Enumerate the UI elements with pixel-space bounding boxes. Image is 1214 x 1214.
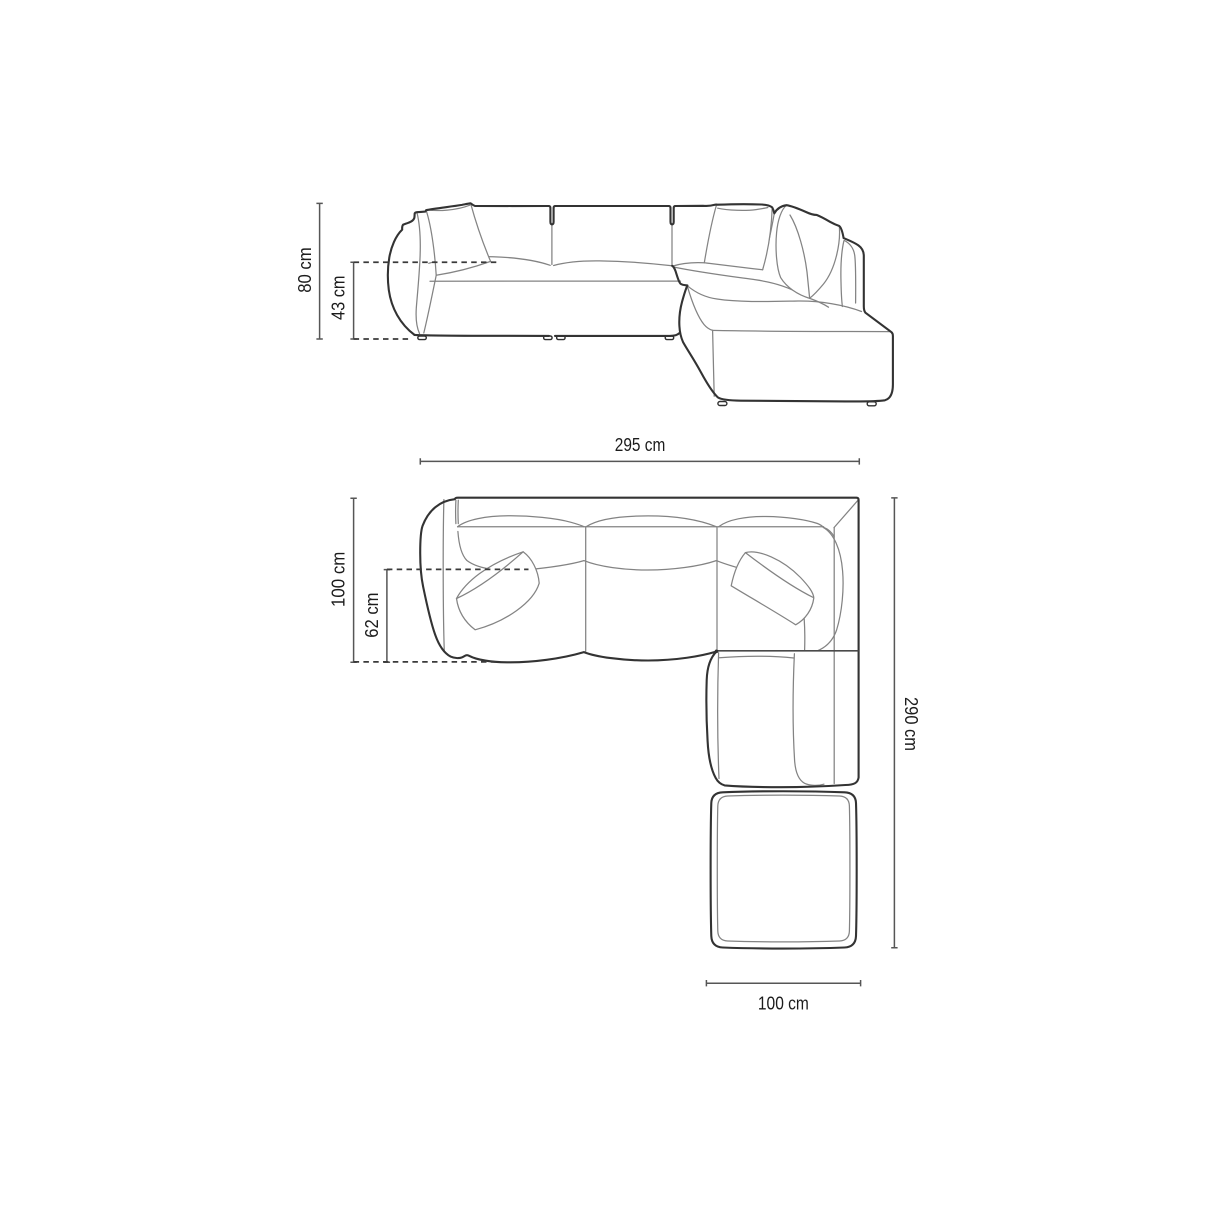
- svg-text:290 cm: 290 cm: [901, 697, 921, 751]
- svg-text:100 cm: 100 cm: [328, 552, 348, 607]
- svg-text:43 cm: 43 cm: [329, 276, 349, 321]
- svg-text:100 cm: 100 cm: [758, 994, 809, 1014]
- svg-text:62 cm: 62 cm: [362, 593, 382, 638]
- svg-text:80 cm: 80 cm: [295, 247, 315, 293]
- svg-text:295 cm: 295 cm: [615, 435, 666, 455]
